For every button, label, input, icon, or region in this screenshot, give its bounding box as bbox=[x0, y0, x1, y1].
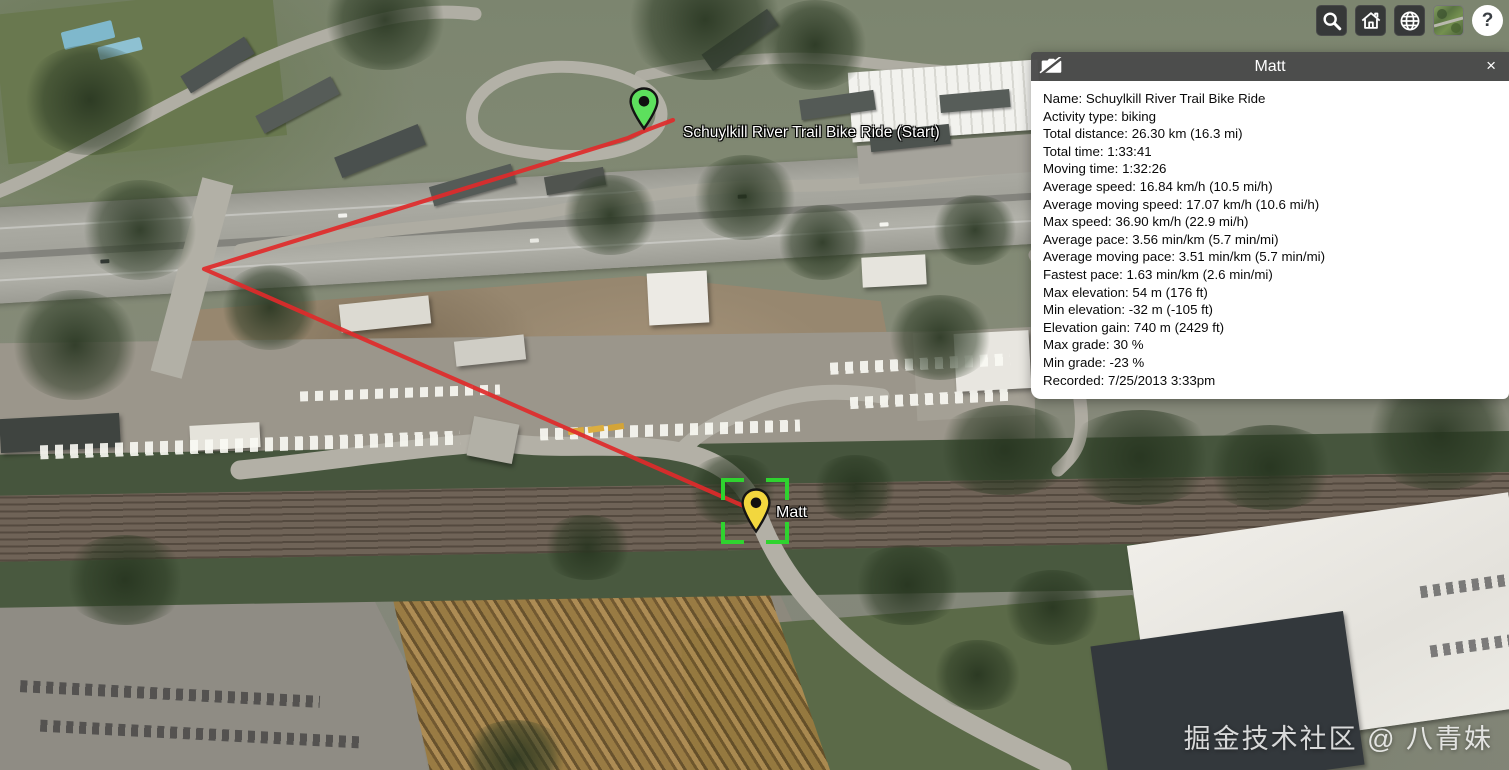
start-marker-label: Schuylkill River Trail Bike Ride (Start) bbox=[683, 124, 940, 142]
imagery-thumbnail-icon bbox=[1434, 6, 1463, 35]
stat-name: Name: Schuylkill River Trail Bike Ride bbox=[1043, 90, 1497, 108]
stat-moving-time: Moving time: 1:32:26 bbox=[1043, 160, 1497, 178]
stat-fastest-pace: Fastest pace: 1.63 min/km (2.6 min/mi) bbox=[1043, 266, 1497, 284]
selected-marker-label: Matt bbox=[776, 504, 807, 522]
stat-max-speed: Max speed: 36.90 km/h (22.9 mi/h) bbox=[1043, 213, 1497, 231]
stat-average-moving-pace: Average moving pace: 3.51 min/km (5.7 mi… bbox=[1043, 248, 1497, 266]
stat-max-grade: Max grade: 30 % bbox=[1043, 336, 1497, 354]
selected-pin-icon[interactable] bbox=[741, 488, 771, 534]
viewer-toolbar: ? bbox=[1316, 5, 1503, 36]
question-mark-icon: ? bbox=[1482, 10, 1494, 32]
infobox-body: Name: Schuylkill River Trail Bike Ride A… bbox=[1031, 81, 1509, 399]
stat-recorded: Recorded: 7/25/2013 3:33pm bbox=[1043, 372, 1497, 390]
entity-infobox: Matt × Name: Schuylkill River Trail Bike… bbox=[1031, 52, 1509, 399]
stat-average-speed: Average speed: 16.84 km/h (10.5 mi/h) bbox=[1043, 178, 1497, 196]
stat-activity-type: Activity type: biking bbox=[1043, 108, 1497, 126]
camera-track-button[interactable] bbox=[1039, 57, 1063, 76]
camera-slash-icon bbox=[1039, 57, 1063, 76]
help-button[interactable]: ? bbox=[1472, 5, 1503, 36]
base-layer-picker-button[interactable] bbox=[1433, 5, 1464, 36]
stat-total-distance: Total distance: 26.30 km (16.3 mi) bbox=[1043, 125, 1497, 143]
start-pin-icon[interactable] bbox=[629, 87, 659, 131]
stat-min-elevation: Min elevation: -32 m (-105 ft) bbox=[1043, 301, 1497, 319]
infobox-header: Matt × bbox=[1031, 52, 1509, 81]
home-button[interactable] bbox=[1355, 5, 1386, 36]
stat-min-grade: Min grade: -23 % bbox=[1043, 354, 1497, 372]
infobox-title: Matt bbox=[1031, 58, 1509, 76]
stat-average-moving-speed: Average moving speed: 17.07 km/h (10.6 m… bbox=[1043, 196, 1497, 214]
search-button[interactable] bbox=[1316, 5, 1347, 36]
close-icon[interactable]: × bbox=[1482, 55, 1500, 77]
scene-mode-button[interactable] bbox=[1394, 5, 1425, 36]
watermark-text: 掘金技术社区 @ 八青妹 bbox=[1184, 717, 1493, 756]
stat-total-time: Total time: 1:33:41 bbox=[1043, 143, 1497, 161]
search-icon bbox=[1321, 10, 1343, 32]
home-icon bbox=[1360, 10, 1382, 32]
stat-average-pace: Average pace: 3.56 min/km (5.7 min/mi) bbox=[1043, 231, 1497, 249]
app-window: Schuylkill River Trail Bike Ride (Start)… bbox=[0, 0, 1509, 770]
stat-elevation-gain: Elevation gain: 740 m (2429 ft) bbox=[1043, 319, 1497, 337]
globe-icon bbox=[1398, 9, 1422, 33]
stat-max-elevation: Max elevation: 54 m (176 ft) bbox=[1043, 284, 1497, 302]
